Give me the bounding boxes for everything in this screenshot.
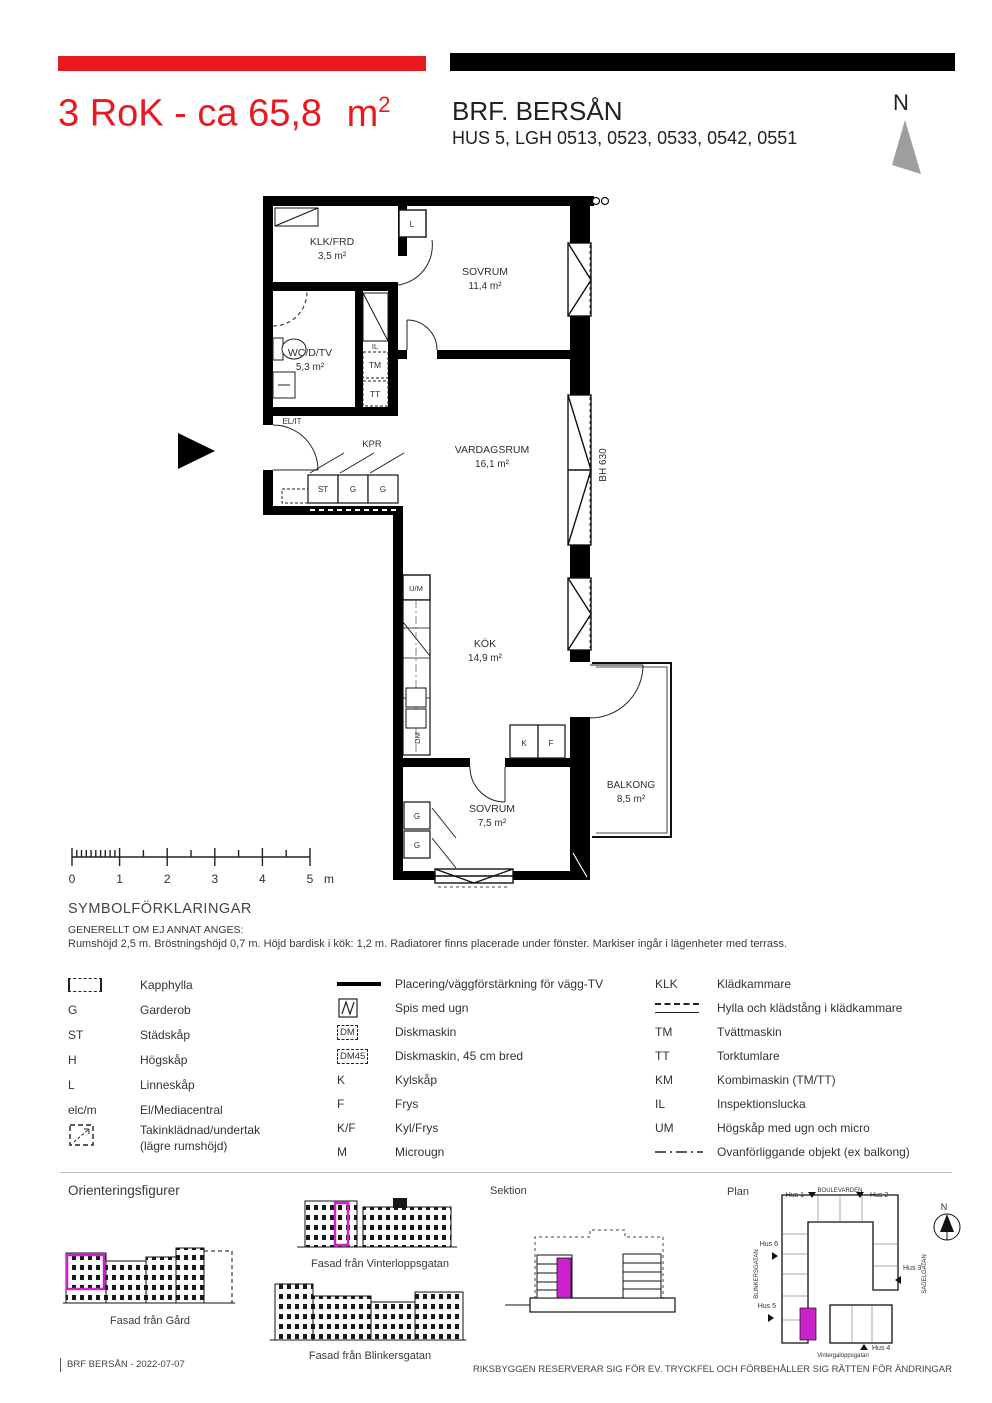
k-label: K [521, 739, 527, 748]
scale-unit: m [324, 872, 334, 886]
footer-project-date: BRF BERSÅN - 2022-07-07 [60, 1358, 185, 1372]
legend-subheading: GENERELLT OM EJ ANNAT ANGES: [68, 924, 243, 936]
room-sovrum1-area: 11,4 m² [468, 281, 502, 292]
room-wc-area: 5,3 m² [296, 362, 325, 373]
room-klk-area: 3,5 m² [318, 251, 347, 262]
fasad-vinterloppsgatan-caption: Fasad från Vinterloppsgatan [300, 1258, 460, 1270]
room-sovrum1-name: SOVRUM [462, 266, 508, 278]
tm-label: TM [369, 360, 381, 370]
scale-tick-1: 1 [116, 872, 123, 886]
legend-symbol: KLK [655, 977, 717, 991]
legend-label: Tvättmaskin [717, 1025, 782, 1039]
bedroom2-wardrobes: G G [404, 802, 456, 868]
legend-label: Microugn [395, 1145, 444, 1159]
hus6-label: Hus 6 [760, 1241, 778, 1248]
fasad-blinkersgatan-caption: Fasad från Blinkersgatan [290, 1350, 450, 1362]
legend-label: Torktumlare [717, 1049, 780, 1063]
legend-symbol: KM [655, 1073, 717, 1087]
legend-note: Rumshöjd 2,5 m. Bröstningshöjd 0,7 m. Hö… [68, 938, 928, 950]
north-arrow-icon [885, 112, 935, 182]
legend-label: Kapphylla [140, 978, 193, 992]
dm45-symbol: DM45 [337, 1049, 368, 1064]
walls [263, 196, 594, 880]
legend-symbol: TT [655, 1049, 717, 1063]
takinkladnad-symbol-icon [68, 1122, 96, 1148]
stove-symbol-icon [337, 997, 359, 1019]
kapphylla-symbol-icon [68, 978, 102, 992]
g2-label: G [380, 485, 386, 494]
um-label: U/M [409, 584, 423, 593]
st-label: ST [318, 485, 328, 494]
unit-highlight-sektion [557, 1258, 571, 1298]
g4-label: G [414, 841, 420, 850]
project-name: BRF. BERSÅN [452, 96, 623, 127]
hus3-label: Hus 3 [903, 1265, 921, 1272]
legend-symbol: F [337, 1097, 395, 1111]
legend-label: Klädkammare [717, 977, 791, 991]
f-label: F [549, 739, 554, 748]
room-kok-name: KÖK [474, 638, 496, 650]
room-balkong-area: 8,5 m² [617, 794, 646, 805]
black-accent-bar [450, 53, 955, 71]
room-balkong-name: BALKONG [607, 780, 656, 791]
room-wc-name: WC/D/TV [288, 347, 332, 359]
kitchen-counter: U/M DM [403, 575, 430, 755]
legend-symbol: H [68, 1053, 140, 1067]
scale-tick-2: 2 [164, 872, 171, 886]
street-sadelgatan: SADELGATAN [922, 1254, 928, 1293]
floorplan-sheet: 3 RoK - ca 65,8 m2 BRF. BERSÅN HUS 5, LG… [0, 0, 992, 1403]
dm-label: DM [413, 732, 422, 744]
plan-figure: BOULEVARDEN Vintergaloppsgatan BLINKERSG… [748, 1184, 966, 1364]
fasad-gard-caption: Fasad från Gård [90, 1315, 210, 1327]
legend-label: Frys [395, 1097, 418, 1111]
windows [435, 243, 591, 883]
legend-symbol: IL [655, 1097, 717, 1111]
unit-highlight-plan [800, 1308, 816, 1340]
legend-symbol: K [337, 1073, 395, 1087]
entry-arrow-icon [178, 433, 215, 469]
page-title: 3 RoK - ca 65,8 m2 [58, 92, 391, 136]
hus4-label: Hus 4 [872, 1345, 890, 1352]
legend-label: Kyl/Frys [395, 1121, 438, 1135]
project-units: HUS 5, LGH 0513, 0523, 0533, 0542, 0551 [452, 128, 797, 149]
legend-column-2: Placering/väggförstärkning för vägg-TV S… [337, 972, 603, 1164]
title-sup: 2 [378, 92, 390, 117]
section-divider [60, 1172, 952, 1173]
scale-tick-5: 5 [307, 872, 314, 886]
tt-label: TT [370, 389, 380, 399]
room-sovrum2-area: 7,5 m² [478, 818, 507, 829]
room-kok-area: 14,9 m² [468, 653, 503, 664]
scale-tick-3: 3 [211, 872, 218, 886]
plan-north-compass-icon: N [934, 1202, 960, 1240]
street-boulevarden: BOULEVARDEN [818, 1188, 863, 1194]
scale-tick-0: 0 [69, 872, 76, 886]
fridge-freezer: K F [510, 725, 565, 758]
street-blinkersgatan: BLINKERSGATAN [754, 1249, 760, 1298]
klk-niche [275, 208, 318, 226]
legend-label: El/Mediacentral [140, 1103, 223, 1117]
kapphylla-box [282, 489, 308, 503]
legend-label: Högskåp med ugn och micro [717, 1121, 870, 1135]
scale-bar: 0 1 2 3 4 5 m [60, 835, 350, 893]
tv-wall-line-icon [337, 982, 381, 986]
hall-cabinets: ST G G [282, 453, 404, 503]
red-accent-bar [58, 56, 426, 71]
room-klk-name: KLK/FRD [310, 236, 355, 248]
room-labels: KLK/FRD 3,5 m² SOVRUM 11,4 m² WC/D/TV 5,… [282, 236, 655, 829]
legend-label: Garderob [140, 1003, 191, 1017]
sektion-figure [495, 1222, 705, 1322]
room-vardagsrum-name: VARDAGSRUM [455, 444, 529, 456]
legend-symbol: ST [68, 1028, 140, 1042]
laundry-closet: IL TM TT [363, 293, 388, 406]
dashdot-symbol-icon [655, 1148, 703, 1156]
footer-disclaimer: RIKSBYGGEN RESERVERAR SIG FÖR EV. TRYCKF… [440, 1364, 952, 1375]
hus2-label: Hus 2 [870, 1192, 888, 1199]
linen-closet: L [399, 210, 426, 237]
sektion-label: Sektion [490, 1185, 527, 1197]
window-outer-dashes [438, 245, 590, 887]
legend-label: Placering/väggförstärkning för vägg-TV [395, 977, 603, 991]
plan-north-label: N [941, 1202, 948, 1212]
legend-label: Högskåp [140, 1053, 187, 1067]
balcony-outline [592, 663, 671, 837]
legend-label: Diskmaskin [395, 1025, 456, 1039]
room-sovrum2-name: SOVRUM [469, 803, 515, 815]
kpr-label: KPR [362, 439, 382, 450]
legend-label: Hylla och klädstång i klädkammare [717, 1001, 902, 1015]
legend-symbol: UM [655, 1121, 717, 1135]
sink-basin-2 [406, 709, 426, 728]
dm-symbol: DM [337, 1025, 358, 1040]
plan-label: Plan [727, 1186, 749, 1198]
legend-column-1: Kapphylla GGarderob STStädskåp HHögskåp … [68, 972, 260, 1160]
hus5-label: Hus 5 [758, 1303, 776, 1310]
legend-label: Linneskåp [140, 1078, 195, 1092]
legend-column-3: KLKKlädkammare Hylla och klädstång i klä… [655, 972, 910, 1164]
l-label: L [410, 219, 415, 229]
g1-label: G [350, 485, 356, 494]
g3-label: G [414, 812, 420, 821]
title-unit: m [347, 93, 379, 135]
legend-label: Ovanförliggande objekt (ex balkong) [717, 1145, 910, 1159]
fasad-vinterloppsgatan-figure [297, 1193, 459, 1253]
bh630-label: BH 630 [598, 448, 609, 482]
legend-label: Kombimaskin (TM/TT) [717, 1073, 836, 1087]
legend-symbol: TM [655, 1025, 717, 1039]
fasad-blinkersgatan-figure [270, 1272, 468, 1346]
legend-symbol: elc/m [68, 1103, 140, 1117]
legend-heading: SYMBOLFÖRKLARINGAR [68, 901, 252, 917]
title-text: 3 RoK - ca 65,8 [58, 93, 322, 135]
legend-label-line2: (lägre rumshöjd) [140, 1139, 227, 1153]
legend-symbol: L [68, 1078, 140, 1092]
legend-label: Inspektionslucka [717, 1097, 806, 1111]
legend-symbol: G [68, 1003, 140, 1017]
vent-icon [593, 198, 609, 205]
sink-basin-1 [406, 688, 426, 707]
legend-symbol: M [337, 1145, 395, 1159]
il-label: IL [372, 342, 378, 351]
orientation-heading: Orienteringsfigurer [68, 1183, 180, 1198]
street-vintergaloppsgatan: Vintergaloppsgatan [817, 1353, 869, 1359]
fasad-gard-figure [63, 1243, 241, 1309]
hus1-label: Hus 1 [786, 1192, 804, 1199]
room-vardagsrum-area: 16,1 m² [475, 459, 510, 470]
legend-label-line1: Takinklädnad/undertak [140, 1123, 260, 1137]
legend-symbol: K/F [337, 1121, 395, 1135]
floorplan-drawing: L IL TM TT [60, 190, 720, 902]
legend-label: Diskmaskin, 45 cm bred [395, 1049, 523, 1063]
scale-tick-4: 4 [259, 872, 266, 886]
legend-label: Kylskåp [395, 1073, 437, 1087]
legend-label: Städskåp [140, 1028, 190, 1042]
elit-label: EL/IT [282, 417, 301, 426]
legend-label: Spis med ugn [395, 1001, 468, 1015]
hylla-symbol-icon [655, 1003, 699, 1013]
